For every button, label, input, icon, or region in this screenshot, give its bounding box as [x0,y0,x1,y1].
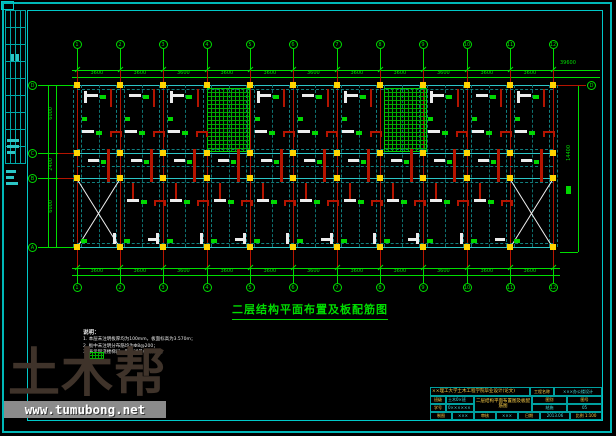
grid-line-v [77,70,78,268]
column-marker [204,82,210,88]
beam-line-red [392,183,394,199]
slab-rebar-mark [442,131,448,135]
column-marker [334,175,340,181]
slab-rebar-mark [404,160,409,164]
dimension-text: 3600 [91,71,104,76]
column-marker [420,82,426,88]
slab-rebar-mark [514,239,520,243]
beam-line-red [381,200,383,206]
title-block-cell: 2013.06 [540,412,570,420]
dimension-text: 3600 [481,269,494,274]
beam-line-red [511,200,513,206]
column-marker [247,82,253,88]
dimension-text: 3600 [524,269,537,274]
beam-dashed-line-v [427,85,428,247]
grid-line-v [77,268,78,283]
column-marker [204,175,210,181]
grid-line-v [56,85,57,247]
slab-rebar-mark [529,131,535,135]
column-marker [550,150,556,156]
slab-rebar-mark [472,117,477,121]
axis-bubble: B [28,174,37,183]
title-block-class-value: 土木0×班 [446,396,474,404]
beam-dashed-line-v [315,85,316,247]
grid-line-h [560,252,578,253]
beam-line-red [327,89,329,107]
axis-bubble: 7 [333,40,342,49]
column-marker [160,82,166,88]
beam-line-red [153,89,155,107]
beam-rebar-mark [472,130,484,133]
beam-rebar-mark [125,130,137,133]
axis-bubble: 3 [159,283,168,292]
beam-dashed-line-v [514,85,515,247]
beam-rebar-mark [168,130,180,133]
slab-rebar-mark [401,200,407,204]
beam-line-red [154,200,156,206]
beam-line-red [206,131,208,137]
beam-rebar-mark [218,159,229,162]
axis-bubble: 4 [203,40,212,49]
beam-rebar-mark [430,199,442,202]
watermark-url: www.tumubong.net [4,401,166,418]
slab-rebar-mark [360,95,366,99]
dimension-text: 3600 [351,269,364,274]
axis-bubble: 11 [506,283,515,292]
beam-line-red [107,149,110,182]
dimension-text: 3600 [394,269,407,274]
beam-line-red [196,131,198,137]
grid-line-h [5,27,25,28]
grid-line-v [250,70,251,268]
beam-line-red [453,149,456,182]
title-block-school: ××理工大学土木工程学院毕业设计(论文) [430,387,530,396]
beam-line-red [424,200,426,206]
column-marker [117,82,123,88]
beam-line-red [456,131,458,137]
beam-rebar-mark [432,94,444,97]
beam-rebar-mark [172,94,184,97]
dimension-text: 3600 [264,269,277,274]
beam-line-red [370,131,372,137]
beam-line-red [370,89,372,107]
column-marker [377,150,383,156]
slab-rebar-mark [342,117,347,121]
dimension-text: 3600 [481,71,494,76]
column-marker [74,244,80,250]
grid-line-h [5,129,25,130]
beam-line-red [283,131,285,137]
beam-line-red [164,200,166,206]
beam-line-red [336,131,338,137]
strip-text-mark [16,54,19,61]
beam-rebar-mark [476,94,488,97]
strip-text-mark [6,176,14,179]
beam-dashed-line-v [333,85,334,247]
beam-line-red [543,89,545,107]
title-block-sheet-type-label: 图别 [532,396,567,404]
column-marker [160,150,166,156]
dimension-text: 6000 [49,200,54,213]
stairwell-hatch [384,88,427,152]
title-block: ××理工大学土木工程学院毕业设计(论文) 工程名称 ×××办公楼设计 班级 土木… [430,387,602,420]
beam-line-red [280,149,283,182]
beam-dashed-line-v [99,85,100,247]
slab-rebar-mark [82,117,87,121]
slab-rebar-mark [566,186,571,194]
beam-rebar-mark [82,130,94,133]
dimension-text: 3600 [264,71,277,76]
grid-line-v [25,10,26,164]
slab-rebar-mark [471,239,477,243]
beam-rebar-mark [298,130,310,133]
beam-dashed-line-v [73,85,74,247]
slab-rebar-mark [167,239,173,243]
beam-rebar-mark [113,233,116,244]
grid-line-v [553,268,554,283]
slab-rebar-mark [341,239,347,243]
beam-line-red [197,89,199,107]
axis-bubble: 1 [73,40,82,49]
beam-dashed-line-v [297,85,298,247]
column-marker [247,175,253,181]
dimension-text: 3600 [91,269,104,274]
beam-rebar-mark [515,130,527,133]
beam-rebar-mark [304,159,315,162]
slab-rebar-mark [101,160,106,164]
beam-line-red [284,200,286,206]
column-marker [550,82,556,88]
grid-line-v [423,268,424,283]
beam-rebar-mark [259,94,271,97]
grid-line-v [337,268,338,283]
beam-line-red [110,131,112,137]
axis-bubble: 1 [73,283,82,292]
beam-dashed-line-v [557,85,558,247]
grid-line-h [72,275,560,276]
beam-rebar-mark [495,238,505,241]
grid-line-v [120,268,121,283]
grid-line-h [5,112,25,113]
column-marker [464,175,470,181]
beam-line-red [501,200,503,206]
dimension-text: 2400 [49,158,54,171]
beam-dashed-line-v [549,85,550,247]
beam-rebar-mark [428,130,440,133]
axis-bubble: 6 [289,283,298,292]
beam-rebar-mark [517,91,520,103]
slab-rebar-mark [428,117,433,121]
column-marker [420,244,426,250]
grid-line-v [380,268,381,283]
beam-line-red [110,89,112,107]
axis-bubble: C [28,149,37,158]
column-marker [507,82,513,88]
column-marker [74,175,80,181]
grid-line-v [207,268,208,283]
beam-rebar-mark [519,94,531,97]
dimension-text: 3600 [221,269,234,274]
beam-rebar-mark [261,159,272,162]
column-marker [377,82,383,88]
beam-line-red [543,131,545,137]
axis-bubble: A [28,243,37,252]
beam-line-red [150,149,153,182]
beam-rebar-mark [286,233,289,244]
dimension-text: 3600 [221,71,234,76]
column-marker [160,244,166,250]
title-block-cell: ××× [452,412,474,420]
title-block-project-value: ×××办公楼设计 [554,387,602,396]
beam-dashed-line-v [116,85,117,247]
title-block-drawing-name: 二层结构平面布置图及板配筋图 [474,396,532,412]
watermark-logo: 土木帮 [8,348,167,400]
beam-rebar-mark [170,199,182,202]
slab-rebar-mark [358,200,364,204]
beam-rebar-mark [88,159,99,162]
beam-line-red [323,149,326,182]
slab-rebar-mark [312,131,318,135]
slab-rebar-mark [141,200,147,204]
dimension-text: 3600 [437,71,450,76]
beam-line-red [207,200,209,206]
title-block-id-label: 学号 [430,404,446,412]
beam-line-red [197,200,199,206]
dimension-text: 3600 [524,71,537,76]
beam-dashed-line-v [167,85,168,247]
title-block-sheet-no-label: 图号 [567,396,602,404]
slab-rebar-mark [96,131,102,135]
beam-dashed-line-v [506,85,507,247]
dimension-text: 14400 [567,145,572,161]
axis-bubble: 2 [116,40,125,49]
beam-dashed-line-v [289,85,290,247]
beam-rebar-mark [342,130,354,133]
slab-rebar-mark [186,95,192,99]
beam-rebar-mark [170,91,173,103]
column-marker [420,175,426,181]
grid-line-h [38,247,77,248]
slab-rebar-mark [298,117,303,121]
title-block-cell: 制图 [430,412,452,420]
beam-rebar-mark [434,159,445,162]
slab-rebar-mark [228,200,234,204]
axis-bubble: 3 [159,40,168,49]
grid-line-h [72,77,600,78]
beam-dashed-line-v [532,85,533,247]
strip-text-mark [7,145,19,148]
dimension-text: 3600 [134,71,147,76]
dimension-text: 39600 [560,61,576,66]
beam-rebar-mark [387,199,399,202]
column-marker [507,175,513,181]
beam-line-red [435,183,437,199]
drawing-title: 二层结构平面布置及板配筋图 [232,301,388,320]
grid-line-v [293,70,294,268]
slab-rebar-mark [184,200,190,204]
beam-line-red [262,183,264,199]
beam-dashed-line-v [471,85,472,247]
beam-dashed-line-v [489,85,490,247]
axis-bubble: D [587,81,596,90]
title-block-cell: 比例 1:100 [570,412,602,420]
grid-line-v [163,268,164,283]
beam-line-red [241,200,243,206]
beam-rebar-mark [257,91,260,103]
dimension-text: 3600 [134,269,147,274]
grid-line-v [467,70,468,268]
column-marker [74,82,80,88]
beam-line-red [293,131,295,137]
beam-line-red [305,183,307,199]
grid-line-v [380,70,381,268]
stairwell-hatch [207,88,250,152]
beam-line-red [337,200,339,206]
grid-line-v [250,268,251,283]
axis-bubble: 9 [419,40,428,49]
grid-line-v [553,70,554,268]
column-marker [247,150,253,156]
axis-bubble: 10 [463,40,472,49]
beam-rebar-mark [129,94,141,97]
slab-rebar-mark [81,239,87,243]
beam-rebar-mark [460,233,463,244]
strip-text-mark [7,151,15,154]
slab-rebar-mark [182,131,188,135]
beam-line-red [120,131,122,137]
beam-line-red [510,131,512,137]
column-marker [507,244,513,250]
title-block-cell: 审核 [474,412,496,420]
title-block-class-label: 班级 [430,396,446,404]
beam-rebar-mark [344,199,356,202]
beam-rebar-mark [156,233,159,244]
beam-dashed-line-v [159,85,160,247]
slab-rebar-mark [447,160,452,164]
slab-rebar-mark [254,239,260,243]
slab-rebar-mark [515,117,520,121]
beam-line-red [410,149,413,182]
slab-rebar-mark [491,160,496,164]
axis-bubble: 6 [289,40,298,49]
slab-rebar-mark [273,95,279,99]
title-block-cell: ××× [496,412,518,420]
grid-line-h [38,85,77,86]
slab-rebar-mark [187,160,192,164]
grid-line-h [5,78,25,79]
beam-dashed-line-v [142,85,143,247]
column-marker [507,150,513,156]
slab-rebar-mark [211,239,217,243]
beam-line-red [500,131,502,137]
slab-rebar-mark [533,95,539,99]
column-marker [160,175,166,181]
beam-rebar-mark [346,94,358,97]
beam-line-red [294,200,296,206]
column-marker [74,150,80,156]
grid-line-v [510,70,511,268]
beam-rebar-mark [255,130,267,133]
beam-rebar-mark [302,94,314,97]
beam-line-red [327,200,329,206]
dimension-text: 6000 [49,107,54,120]
strip-text-mark [11,54,14,61]
slab-rebar-mark [446,95,452,99]
slab-rebar-mark [490,95,496,99]
column-marker [117,244,123,250]
slab-rebar-mark [488,200,494,204]
column-marker [550,175,556,181]
slab-rebar-mark [269,131,275,135]
grid-line-h [5,61,25,62]
slab-rebar-mark [297,239,303,243]
beam-line-red [132,183,134,199]
grid-line-v [293,268,294,283]
column-marker [290,82,296,88]
axis-bubble: 5 [246,283,255,292]
beam-dashed-line-v [376,85,377,247]
beam-rebar-mark [344,91,347,103]
beam-rebar-mark [200,233,203,244]
beam-rebar-mark [300,199,312,202]
beam-line-red [457,200,459,206]
title-block-project-label: 工程名称 [530,387,554,396]
dimension-text: 3600 [307,269,320,274]
beam-line-red [467,200,469,206]
slab-rebar-mark [168,117,173,121]
beam-line-red [479,183,481,199]
title-block-id-value: 0×××××× [446,404,474,412]
beam-rebar-mark [430,91,433,103]
beam-line-red [349,183,351,199]
column-marker [334,82,340,88]
notes-header: 说明： [83,330,243,337]
beam-line-red [219,183,221,199]
column-marker [334,244,340,250]
beam-dashed-line-v [359,85,360,247]
axis-bubble: 12 [549,40,558,49]
beam-rebar-mark [521,159,532,162]
grid-line-h [5,163,25,164]
grid-line-v [510,268,511,283]
column-marker [117,150,123,156]
dimension-text: 3600 [177,269,190,274]
slab-rebar-mark [314,200,320,204]
column-marker [290,175,296,181]
column-marker [464,244,470,250]
beam-rebar-mark [474,199,486,202]
column-marker [334,150,340,156]
axis-bubble: D [28,81,37,90]
beam-line-red [553,131,555,137]
column-marker [290,244,296,250]
beam-rebar-mark [257,199,269,202]
column-marker [204,244,210,250]
beam-rebar-mark [127,199,139,202]
beam-line-red [414,200,416,206]
column-marker [377,175,383,181]
beam-line-red [237,149,240,182]
slab-rebar-mark [384,239,390,243]
dimension-text: 3600 [437,269,450,274]
slab-rebar-mark [125,117,130,121]
beam-rebar-mark [373,233,376,244]
slab-rebar-mark [361,160,366,164]
grid-line-h [5,95,25,96]
beam-dashed-line-v [185,85,186,247]
grid-line-v [5,10,6,164]
grid-line-v [578,85,579,252]
